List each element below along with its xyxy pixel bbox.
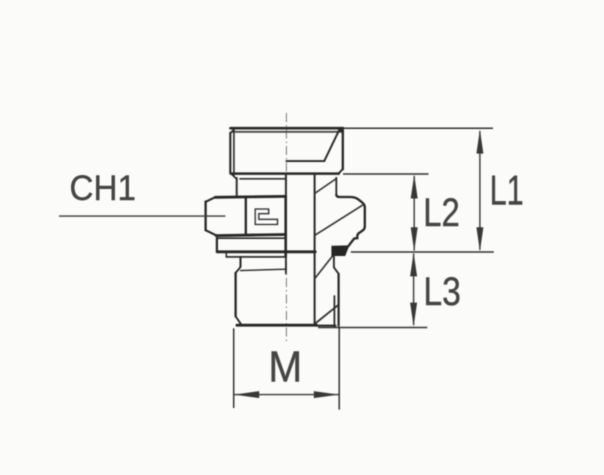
svg-text:L1: L1 [490, 167, 524, 214]
svg-text:L3: L3 [423, 270, 461, 314]
svg-text:CH1: CH1 [70, 168, 137, 208]
svg-text:M: M [268, 344, 302, 392]
svg-text:L2: L2 [423, 191, 460, 235]
